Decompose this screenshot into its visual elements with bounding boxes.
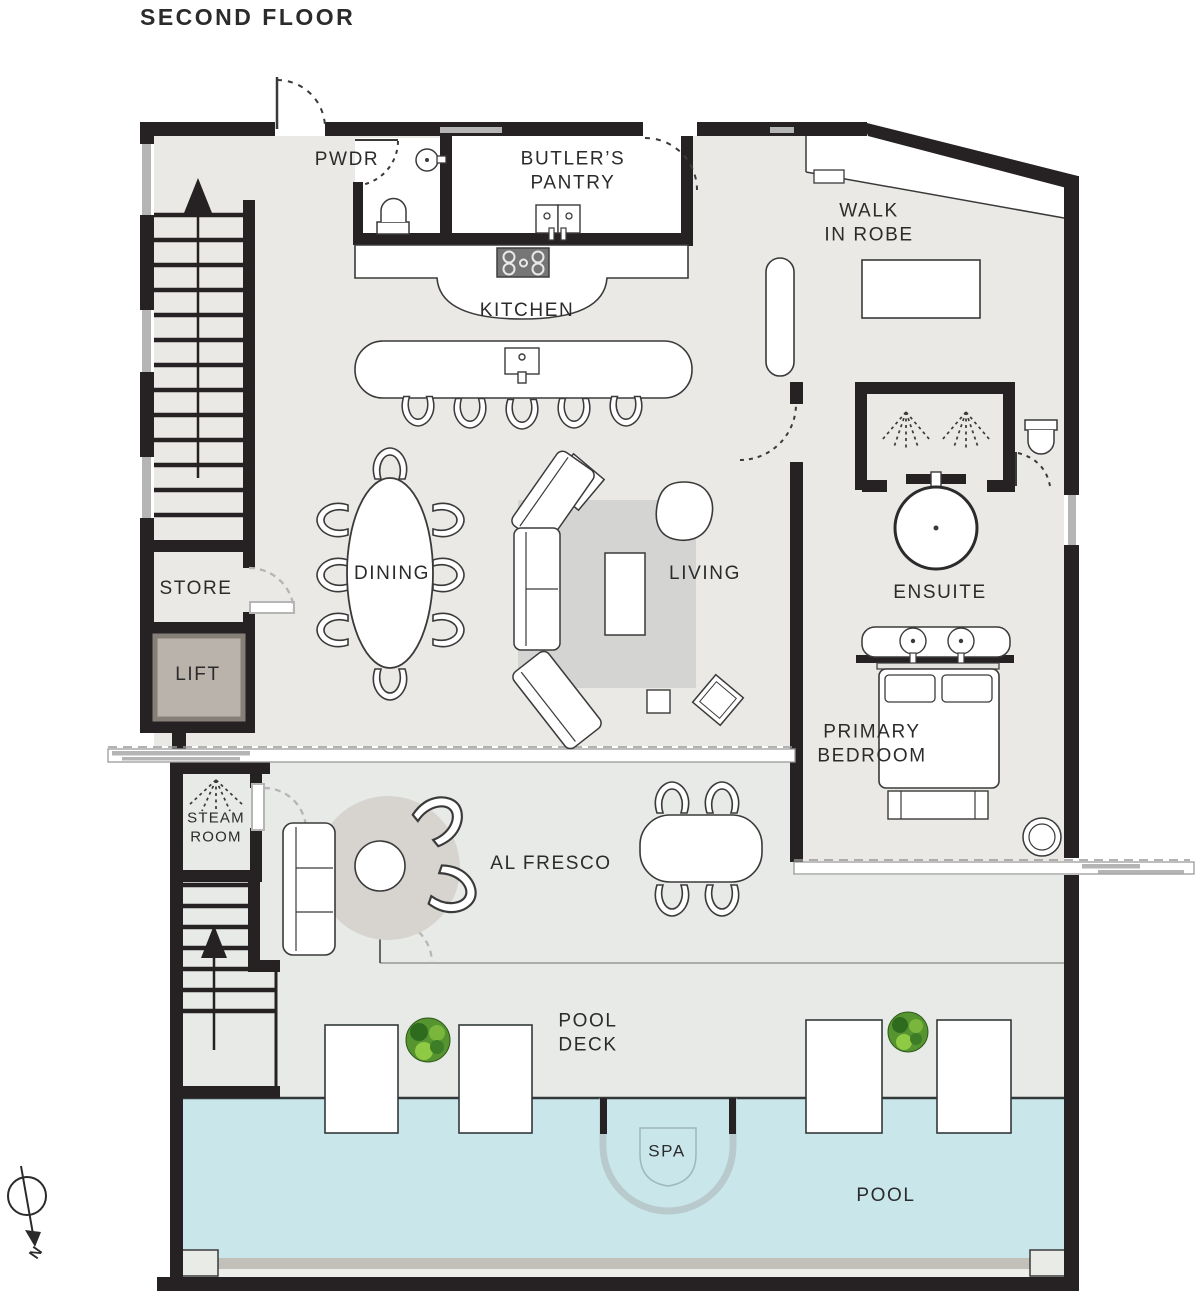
coffee-table-icon bbox=[605, 553, 645, 635]
round-table-icon bbox=[355, 841, 405, 891]
outdoor-sofa-icon bbox=[283, 823, 335, 955]
label-spa: SPA bbox=[648, 1140, 686, 1161]
toilet-icon bbox=[377, 222, 409, 234]
label-pwdr: PWDR bbox=[315, 148, 379, 172]
toilet-icon bbox=[1025, 420, 1057, 430]
armchair-icon bbox=[656, 482, 712, 540]
vanity-icon bbox=[862, 627, 1010, 657]
label-pool: POOL bbox=[856, 1184, 915, 1208]
sun-lounger-icon bbox=[325, 1025, 398, 1133]
label-walk-in-robe: WALK IN ROBE bbox=[824, 199, 913, 247]
sun-lounger-icon bbox=[806, 1020, 882, 1133]
label-butlers-pantry: BUTLER’S PANTRY bbox=[521, 147, 626, 195]
compass-icon bbox=[8, 1166, 46, 1247]
sun-lounger-icon bbox=[937, 1020, 1011, 1133]
sun-lounger-icon bbox=[459, 1025, 532, 1133]
label-living: LIVING bbox=[669, 562, 741, 586]
label-ensuite: ENSUITE bbox=[893, 581, 987, 605]
label-steam-room: STEAM ROOM bbox=[187, 809, 245, 847]
robe-island-icon bbox=[862, 260, 980, 318]
plant-icon bbox=[406, 1018, 450, 1062]
label-lift: LIFT bbox=[175, 663, 220, 687]
floor-plan-drawing bbox=[0, 0, 1200, 1299]
island-sink-icon bbox=[505, 348, 539, 374]
headboard-icon bbox=[877, 663, 999, 669]
label-al-fresco: AL FRESCO bbox=[490, 852, 611, 876]
bench-icon bbox=[888, 791, 988, 819]
outdoor-dining-table-icon bbox=[640, 815, 762, 882]
floor-plan: SECOND FLOOR PWDR BUTLER’S PANTRY WALK I… bbox=[0, 0, 1200, 1299]
plant-icon bbox=[888, 1012, 928, 1052]
label-kitchen: KITCHEN bbox=[480, 299, 575, 323]
label-primary-bedroom: PRIMARY BEDROOM bbox=[817, 720, 926, 768]
page-title: SECOND FLOOR bbox=[140, 4, 355, 31]
label-pool-deck: POOL DECK bbox=[558, 1009, 617, 1057]
label-store: STORE bbox=[159, 577, 232, 601]
label-dining: DINING bbox=[354, 562, 430, 586]
cavity-door-icon bbox=[766, 258, 794, 376]
